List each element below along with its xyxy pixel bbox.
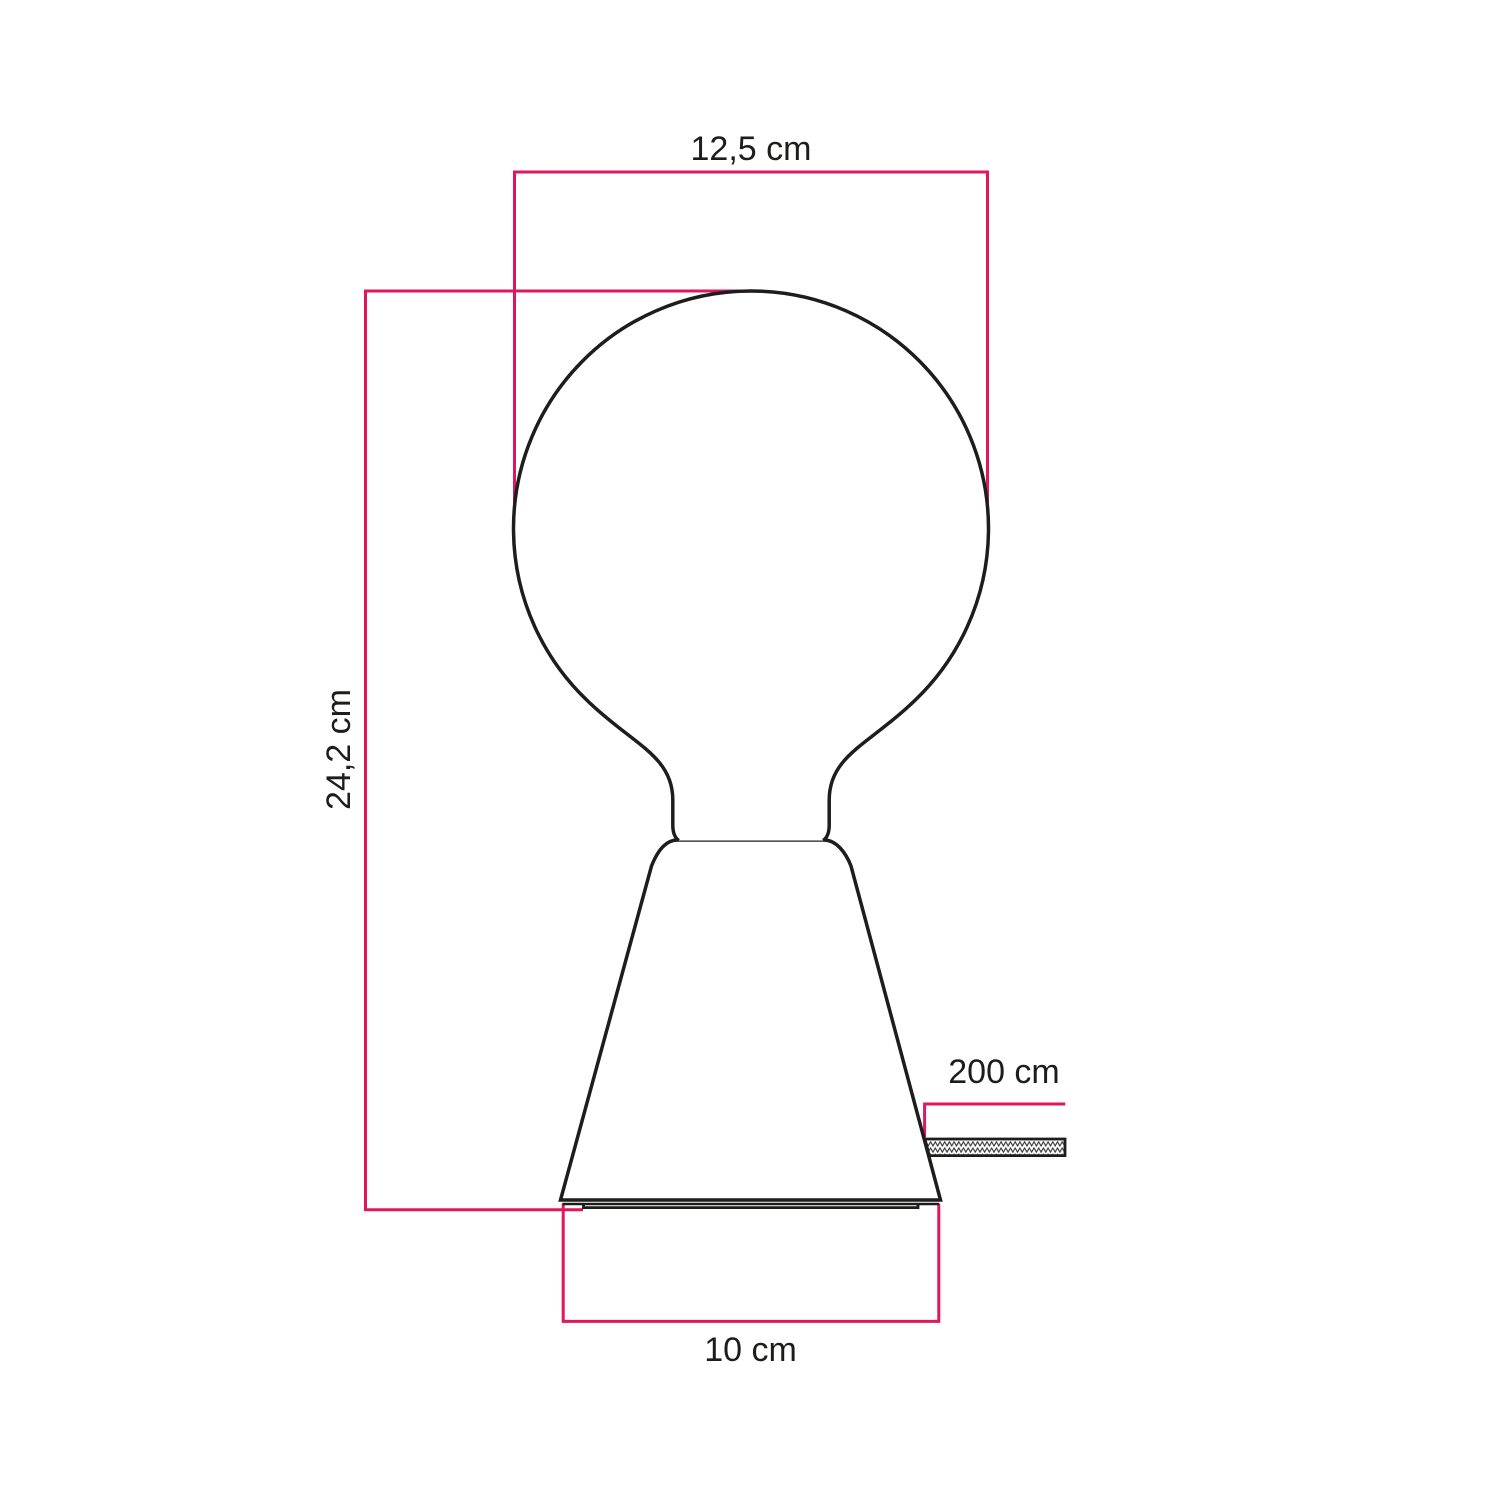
svg-text:10 cm: 10 cm — [704, 1331, 797, 1369]
svg-text:24,2 cm: 24,2 cm — [320, 689, 358, 810]
svg-text:200 cm: 200 cm — [948, 1053, 1060, 1091]
svg-text:12,5 cm: 12,5 cm — [691, 130, 812, 168]
